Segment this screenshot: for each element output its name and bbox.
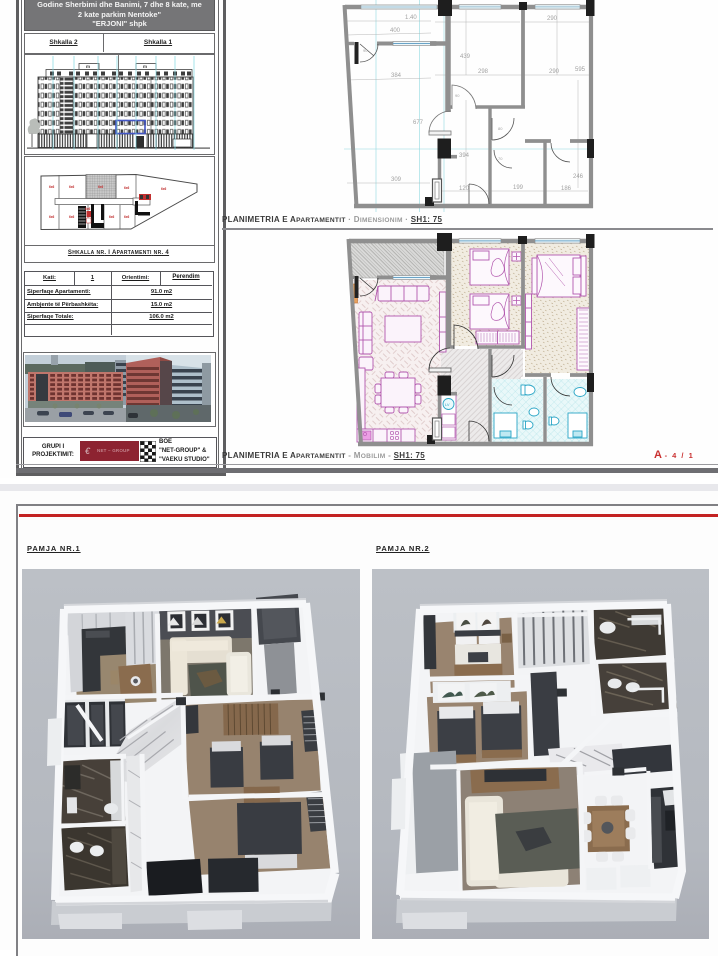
svg-text:6x6: 6x6 — [124, 215, 130, 219]
svg-text:6x6: 6x6 — [69, 215, 75, 219]
svg-text:90: 90 — [363, 48, 368, 53]
svg-text:6x6: 6x6 — [109, 215, 115, 219]
svg-text:677: 677 — [413, 120, 424, 126]
svg-text:290: 290 — [549, 69, 560, 75]
svg-text:1.40: 1.40 — [405, 15, 417, 21]
svg-text:80: 80 — [498, 126, 503, 131]
svg-text:6x6: 6x6 — [69, 185, 75, 189]
svg-text:6x6: 6x6 — [98, 185, 104, 189]
svg-text:120: 120 — [459, 186, 470, 192]
svg-text:290: 290 — [547, 16, 558, 22]
svg-text:400: 400 — [390, 28, 401, 34]
svg-text:LV: LV — [445, 402, 450, 407]
svg-text:394: 394 — [459, 153, 470, 159]
svg-text:6x6: 6x6 — [161, 187, 167, 191]
svg-text:6x6: 6x6 — [49, 185, 55, 189]
svg-text:6x6: 6x6 — [49, 215, 55, 219]
svg-text:186: 186 — [561, 186, 572, 192]
svg-text:m: m — [143, 64, 147, 69]
svg-text:70: 70 — [498, 156, 503, 161]
svg-text:309: 309 — [391, 177, 402, 183]
svg-text:6x6: 6x6 — [85, 207, 91, 211]
svg-text:595: 595 — [575, 67, 586, 73]
svg-text:90: 90 — [455, 93, 460, 98]
svg-text:m: m — [86, 64, 90, 69]
svg-text:246: 246 — [573, 174, 584, 180]
svg-text:199: 199 — [513, 185, 524, 191]
svg-text:384: 384 — [391, 73, 402, 79]
svg-text:439: 439 — [460, 54, 471, 60]
svg-text:298: 298 — [478, 69, 489, 75]
svg-text:6x6: 6x6 — [124, 186, 130, 190]
